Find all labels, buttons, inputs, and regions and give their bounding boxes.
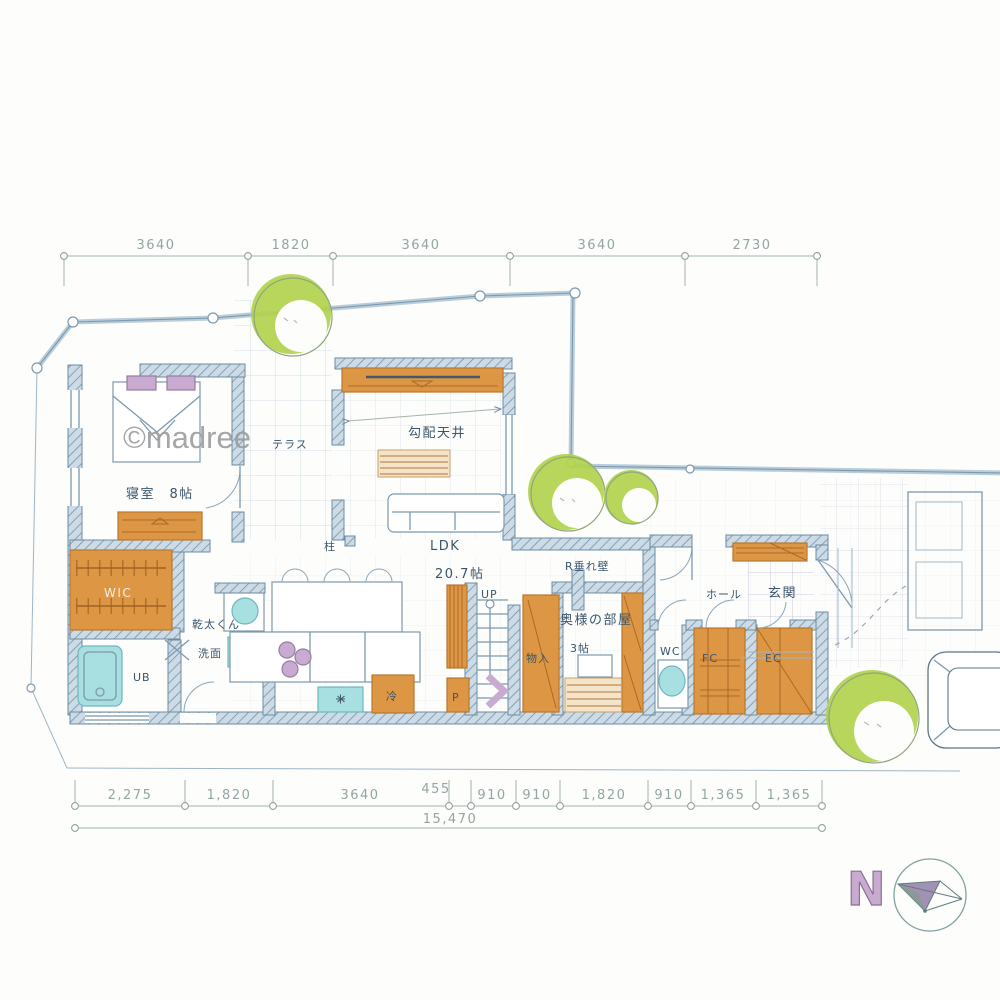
dim-bottom-2: 1,820: [207, 788, 252, 803]
dim-bottom-4: 455: [421, 782, 450, 797]
low-table: [578, 655, 612, 677]
toilet: [659, 666, 685, 696]
car: [928, 652, 1000, 748]
wife-room-size-label: 3帖: [570, 642, 590, 655]
window-left-1: [66, 390, 84, 428]
wic-label: WIC: [104, 586, 132, 600]
tv-board: [342, 368, 503, 392]
tall-cabinet: [447, 585, 467, 668]
dim-bottom-8: 910: [654, 788, 683, 803]
dim-top-1: 3640: [136, 238, 175, 253]
dim-bottom-6: 910: [522, 788, 551, 803]
window-left-2: [66, 468, 84, 506]
r-wall-label: R垂れ壁: [565, 559, 610, 573]
pillow-left: [127, 376, 156, 390]
dim-bottom-7: 1,820: [582, 788, 627, 803]
pillar-label: 柱: [324, 539, 336, 553]
up-label: UP: [481, 588, 498, 601]
dryer-label: 乾太くん: [192, 618, 240, 631]
dresser: [118, 512, 202, 540]
dim-top-5: 2730: [732, 238, 771, 253]
floor-plan-page: 3640 1820 3640 3640 2730 2,275 1,820 364…: [0, 0, 1000, 1000]
sloped-ceiling-label: 勾配天井: [408, 426, 466, 441]
terrace-label: テラス: [272, 438, 308, 451]
wife-room-closet: [622, 593, 643, 712]
bedroom-label: 寝室 8帖: [126, 486, 194, 502]
dishwasher: [318, 687, 363, 712]
shoe-cabinet: [733, 543, 807, 561]
island-counter: [272, 582, 402, 632]
dim-top-2: 1820: [271, 238, 310, 253]
bedroom: [113, 376, 240, 540]
sofa: [388, 494, 504, 532]
tree-mid-right: [604, 470, 658, 524]
washroom-door-arc: [184, 682, 214, 712]
dim-bottom-5: 910: [477, 788, 506, 803]
top-dimension-line: 3640 1820 3640 3640 2730: [61, 238, 821, 286]
washroom-door-gap: [180, 713, 216, 723]
floor-plan-drawing: 3640 1820 3640 3640 2730 2,275 1,820 364…: [0, 0, 1000, 1000]
storage-label: 物入: [526, 651, 550, 665]
ec-label: EC: [765, 652, 782, 665]
washroom-label: 洗面: [198, 647, 222, 660]
dim-bottom-1: 2,275: [108, 788, 153, 803]
dim-bottom-9: 1,365: [701, 788, 746, 803]
dim-top-3: 3640: [401, 238, 440, 253]
ldk-label: LDK: [430, 539, 460, 554]
window-ldk-right: [501, 415, 517, 494]
pantry-label: P: [452, 691, 460, 704]
dim-total: 15,470: [423, 812, 478, 827]
ldk-size-label: 20.7帖: [435, 567, 484, 582]
entrance-label: 玄関: [768, 586, 797, 601]
ub-label: UB: [133, 671, 151, 684]
north-letter: N: [847, 862, 886, 916]
watermark: ©madree: [123, 420, 251, 455]
wife-room-label: 奥様の部屋: [560, 613, 633, 628]
compass: N: [847, 859, 966, 931]
tatami-steps: [565, 678, 623, 712]
window-bottom: [85, 713, 149, 723]
bottom-dimension-line: 2,275 1,820 3640 455 910 910 1,820 910 1…: [72, 780, 826, 831]
rug: [378, 450, 450, 477]
hall-label: ホール: [706, 588, 742, 601]
dim-bottom-10: 1,365: [767, 788, 812, 803]
wc-label: WC: [660, 645, 681, 658]
dim-bottom-3: 3640: [340, 788, 379, 803]
fridge-label: 冷: [386, 690, 398, 703]
fc-label: FC: [702, 652, 718, 665]
pillow-right: [167, 376, 195, 390]
dim-top-4: 3640: [577, 238, 616, 253]
